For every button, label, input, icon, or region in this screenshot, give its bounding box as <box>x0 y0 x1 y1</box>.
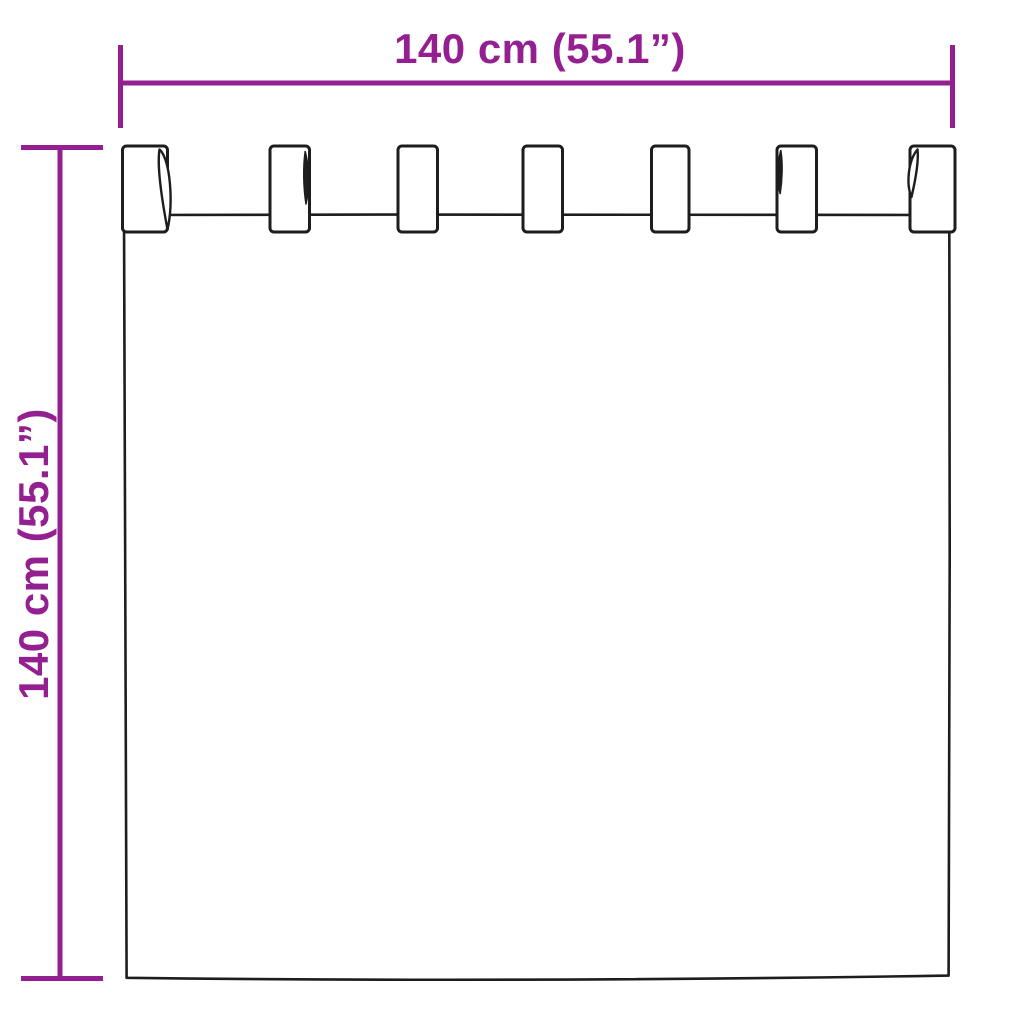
curtain-tab-7 <box>909 146 955 232</box>
curtain-tab-4 <box>523 146 563 232</box>
tab-rect <box>652 146 690 232</box>
curtain-tab-6 <box>777 146 817 232</box>
diagram-canvas: 140 cm (55.1”) 140 cm (55.1”) <box>0 0 1024 1024</box>
curtain-panel-body <box>124 215 950 980</box>
curtain-tab-3 <box>398 146 438 232</box>
tab-rect <box>777 146 817 232</box>
curtain-tab-1 <box>123 146 171 232</box>
tab-rect <box>398 146 438 232</box>
width-dimension-label: 140 cm (55.1”) <box>394 28 686 70</box>
curtain-tab-5 <box>652 146 690 232</box>
curtain-tabs <box>123 146 956 232</box>
tab-rect <box>523 146 563 232</box>
curtain-diagram <box>0 0 1024 1024</box>
curtain-tab-2 <box>270 146 310 232</box>
height-dimension-label: 140 cm (55.1”) <box>13 408 55 700</box>
curtain-outline <box>124 215 950 980</box>
